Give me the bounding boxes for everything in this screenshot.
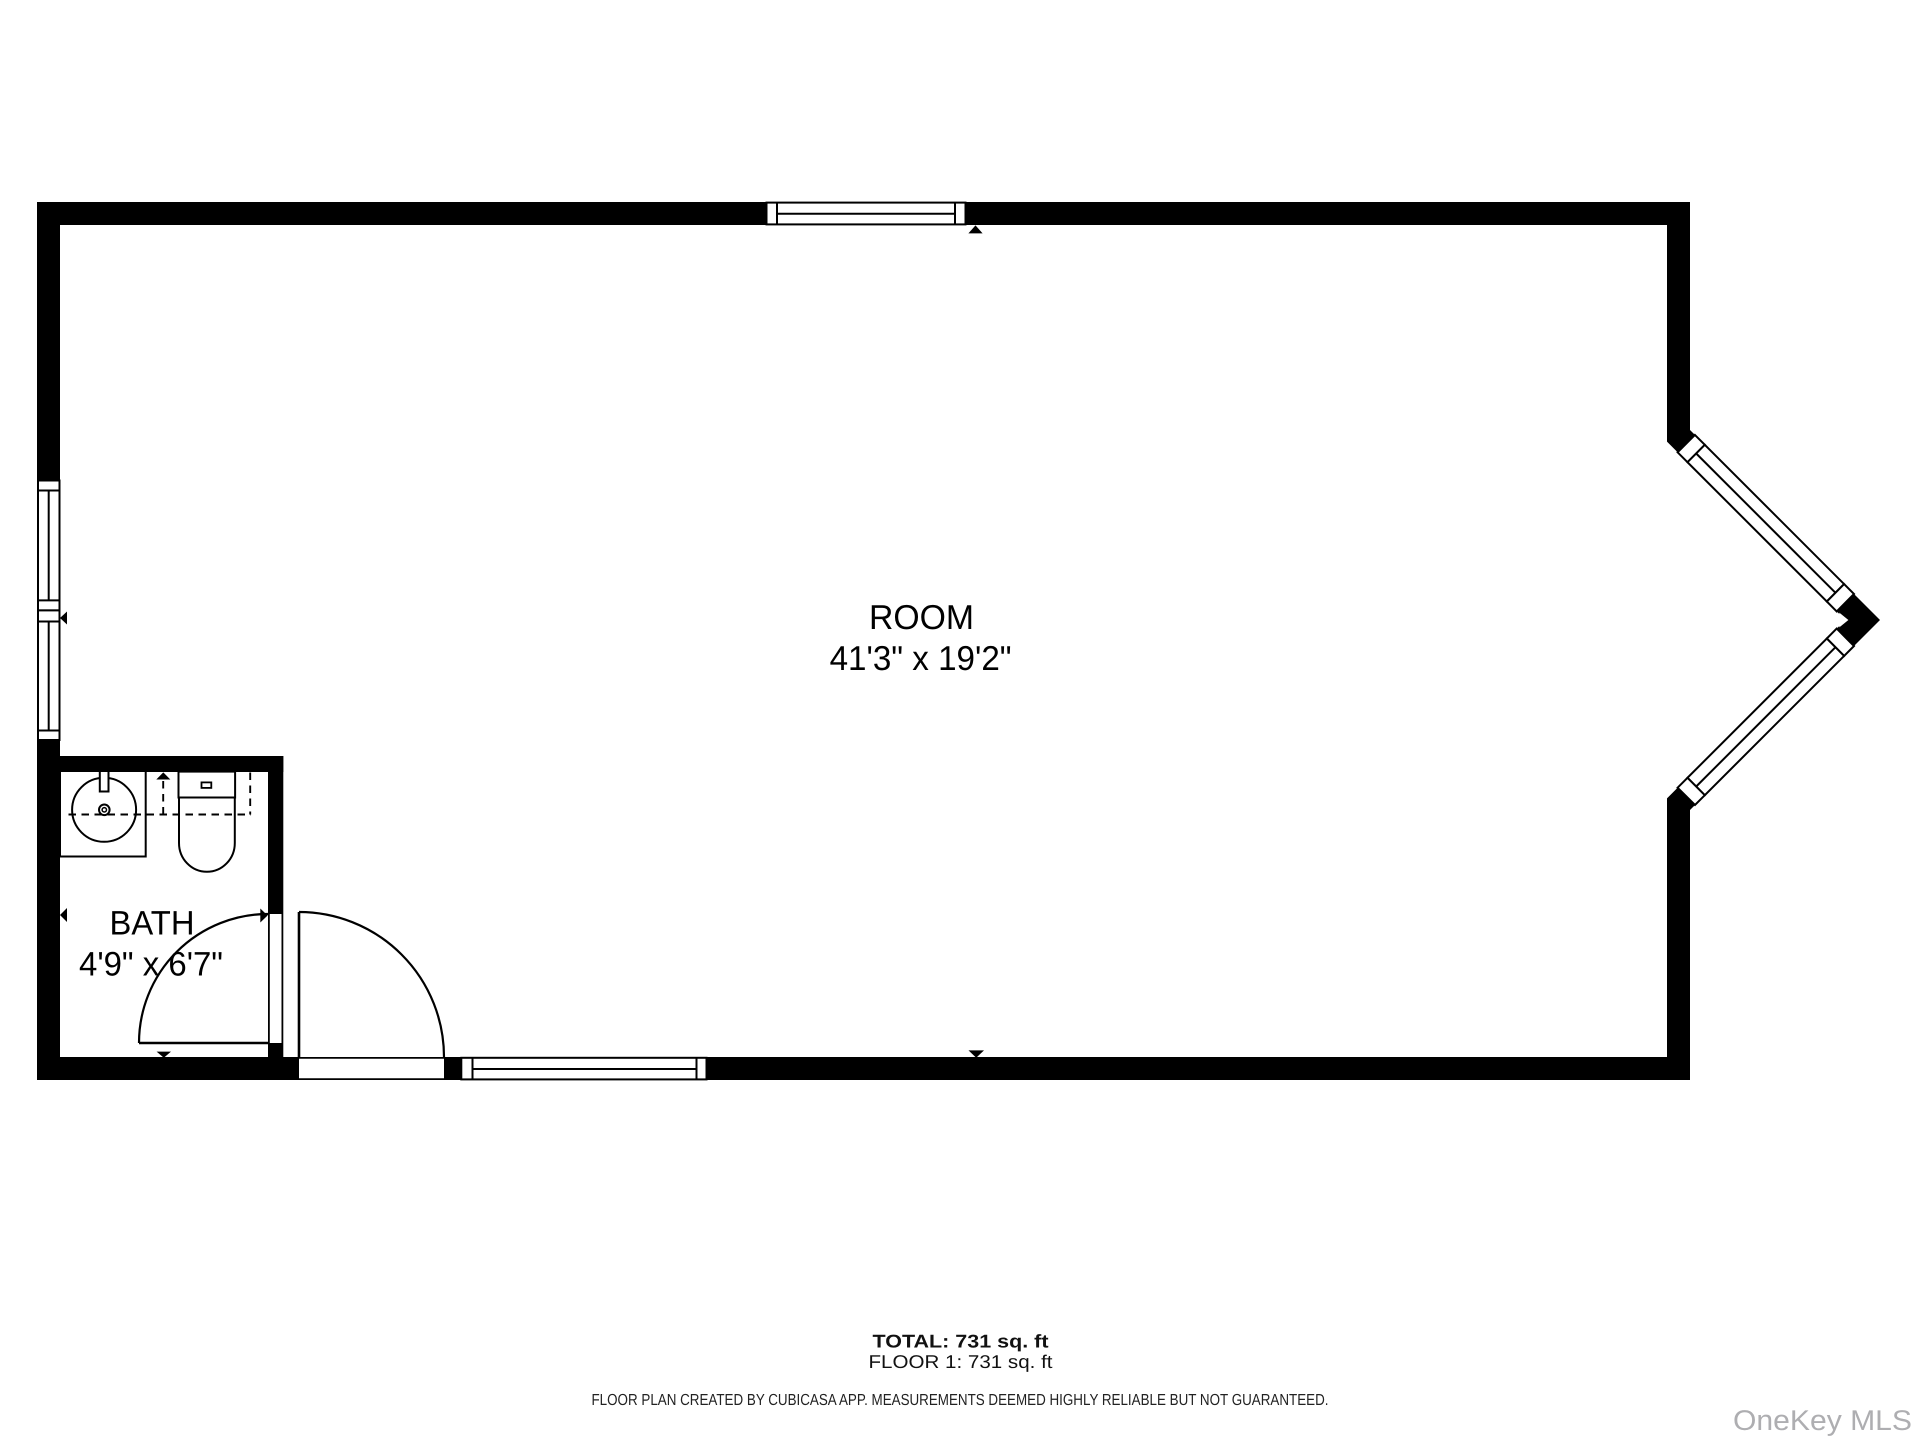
svg-text:4'9" x 6'7": 4'9" x 6'7" (79, 945, 223, 983)
svg-text:BATH: BATH (110, 905, 195, 943)
svg-text:ROOM: ROOM (869, 599, 974, 637)
svg-text:FLOOR PLAN CREATED BY CUBICASA: FLOOR PLAN CREATED BY CUBICASA APP. MEAS… (592, 1392, 1329, 1409)
svg-text:OneKey MLS: OneKey MLS (1733, 1405, 1912, 1437)
svg-text:41'3" x 19'2": 41'3" x 19'2" (830, 640, 1012, 678)
svg-text:TOTAL: 731 sq. ft: TOTAL: 731 sq. ft (873, 1331, 1049, 1352)
svg-text:FLOOR 1: 731 sq. ft: FLOOR 1: 731 sq. ft (869, 1351, 1053, 1372)
